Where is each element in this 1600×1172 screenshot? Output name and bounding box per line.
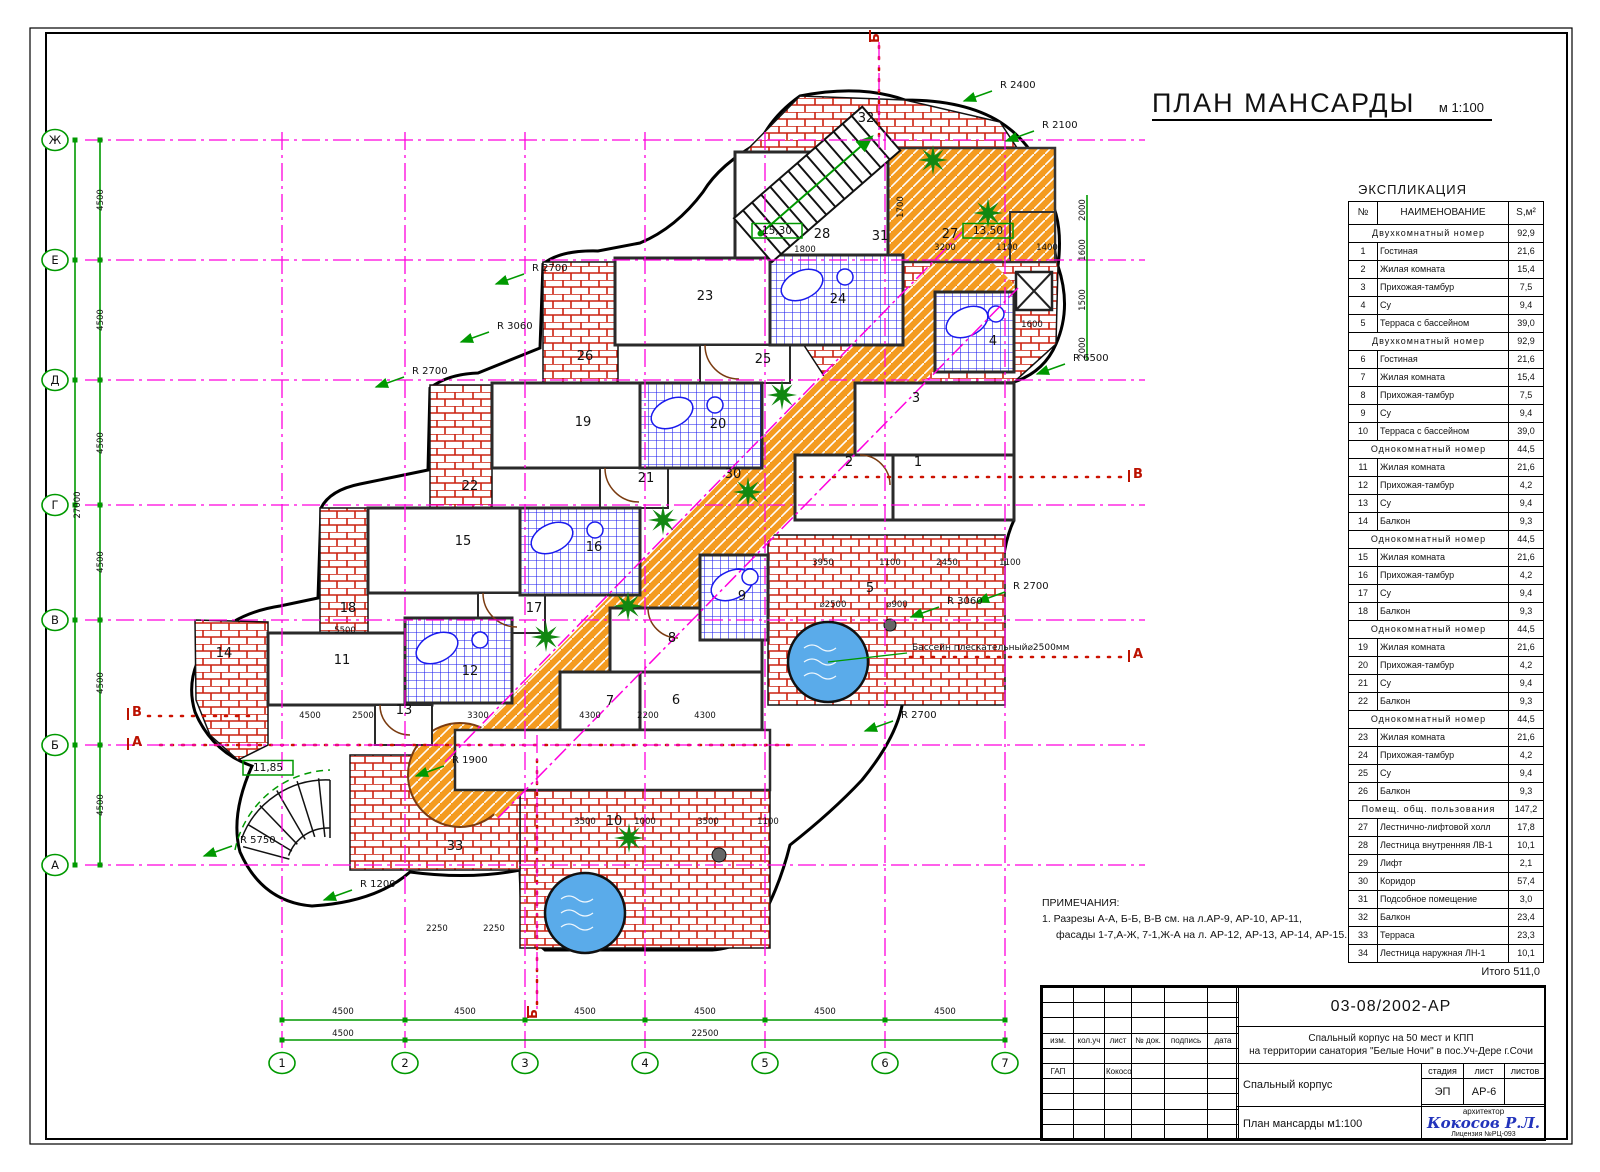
- room-number: 21: [638, 471, 655, 486]
- room-number: 27: [942, 227, 959, 242]
- dimension-label: 4300: [579, 711, 601, 721]
- explication-row: 9Су9,4: [1349, 405, 1544, 423]
- dimension-label: 2000: [1078, 199, 1088, 221]
- dimension-label: 3950: [812, 558, 834, 568]
- axis-letter: А: [51, 858, 59, 872]
- axis-number: 6: [881, 1056, 888, 1070]
- room-number: 8: [668, 631, 676, 646]
- tree-icon: [648, 505, 678, 535]
- section-mark: В: [132, 705, 142, 720]
- room-number: 2: [845, 455, 853, 470]
- explication-row: 28Лестница внутренняя ЛВ-110,1: [1349, 837, 1544, 855]
- dimension-label: 4500: [96, 672, 106, 694]
- explication-row: 32Балкон23,4: [1349, 909, 1544, 927]
- explication-row: 23Жилая комната21,6: [1349, 729, 1544, 747]
- explication-row: 18Балкон9,3: [1349, 603, 1544, 621]
- room-number: 14: [216, 646, 233, 661]
- explication-group-row: Однокомнатный номер44,5: [1349, 441, 1544, 459]
- radius-label: R 3060: [497, 321, 533, 332]
- radius-label: R 2700: [532, 263, 568, 274]
- room-number: 32: [858, 111, 875, 126]
- room-number: 22: [462, 479, 479, 494]
- axis-letter: Ж: [49, 133, 62, 147]
- dimension-label: 4300: [694, 711, 716, 721]
- axis-letter: Е: [51, 253, 58, 267]
- room-number: 30: [725, 467, 742, 482]
- room-number: 16: [586, 540, 603, 555]
- title-block: изм.кол.учлист№ док.подписьдатаГАПКокосо…: [1040, 985, 1546, 1141]
- dimension-label: 1100: [757, 817, 779, 827]
- dimension-label: 4500: [96, 794, 106, 816]
- explication-row: 21Су9,4: [1349, 675, 1544, 693]
- sheets-label: листов: [1504, 1063, 1546, 1079]
- explication-row: 10Терраса с бассейном39,0: [1349, 423, 1544, 441]
- axis-letter: В: [51, 613, 59, 627]
- license-number: Лицензия №РЦ-093: [1451, 1131, 1515, 1139]
- radius-leader: [964, 91, 992, 101]
- room-number: 11: [334, 653, 351, 668]
- explication-row: 25Су9,4: [1349, 765, 1544, 783]
- room-number: 3: [912, 391, 920, 406]
- dimension-label: 4500: [694, 1007, 716, 1017]
- explication-row: 3Прихожая-тамбур7,5: [1349, 279, 1544, 297]
- explication: ЭКСПЛИКАЦИЯ № НАИМЕНОВАНИЕ S,м²Двухкомна…: [1348, 182, 1544, 978]
- dimension-label: 2250: [426, 924, 448, 934]
- radius-leader: [376, 377, 404, 387]
- dimension-label: 4500: [96, 551, 106, 573]
- dimension-label: 4500: [934, 1007, 956, 1017]
- explication-row: 33Терраса23,3: [1349, 927, 1544, 945]
- dimension-label: 1600: [1078, 239, 1088, 261]
- notes: ПРИМЕЧАНИЯ: 1. Разрезы А-А, Б-Б, В-В см.…: [1042, 896, 1372, 943]
- room-number: 1: [914, 455, 922, 470]
- toilet-icon: [472, 632, 488, 648]
- room-number: 25: [755, 352, 772, 367]
- project-name: Спальный корпус на 50 мест и КПП на терр…: [1236, 1026, 1546, 1064]
- dimension-label: 4500: [96, 309, 106, 331]
- dimension-label: 4500: [814, 1007, 836, 1017]
- explication-row: 15Жилая комната21,6: [1349, 549, 1544, 567]
- tree-icon: [613, 591, 643, 621]
- dimension-label: 1700: [896, 196, 906, 218]
- explication-row: 22Балкон9,3: [1349, 693, 1544, 711]
- level-mark: 11,85: [253, 762, 283, 774]
- explication-row: 34Лестница наружная ЛН-110,1: [1349, 945, 1544, 963]
- dimension-label: 4500: [454, 1007, 476, 1017]
- stage-value: ЭП: [1421, 1078, 1464, 1105]
- room-number: 28: [814, 227, 831, 242]
- explication-row: 24Прихожая-тамбур4,2: [1349, 747, 1544, 765]
- explication-row: 12Прихожая-тамбур4,2: [1349, 477, 1544, 495]
- dimension-label: ⌀900: [886, 600, 907, 610]
- dimension-label: 4500: [96, 432, 106, 454]
- dimension-label: 1600: [1021, 320, 1043, 330]
- explication-title: ЭКСПЛИКАЦИЯ: [1358, 182, 1544, 197]
- tree-icon: [531, 622, 561, 652]
- dimension-label: 3500: [574, 817, 596, 827]
- section-mark: В: [1133, 467, 1143, 482]
- explication-row: 20Прихожая-тамбур4,2: [1349, 657, 1544, 675]
- explication-row: 26Балкон9,3: [1349, 783, 1544, 801]
- level-mark: 15,30: [762, 225, 792, 237]
- pool-label: Бассейн плескательный⌀2500мм: [912, 643, 1069, 653]
- section-mark: Б: [526, 1009, 541, 1019]
- room-number: 31: [872, 229, 889, 244]
- axis-letter: Д: [51, 373, 60, 387]
- room-number: 24: [830, 292, 847, 307]
- explication-row: 29Лифт2,1: [1349, 855, 1544, 873]
- dimension-label: 1800: [794, 245, 816, 255]
- room-number: 12: [462, 664, 479, 679]
- dimension-label: 2250: [483, 924, 505, 934]
- room-number: 17: [526, 601, 543, 616]
- dimension-label: 1100: [996, 243, 1018, 253]
- section-mark: А: [1133, 647, 1143, 662]
- explication-group-row: Двухкомнатный номер92,9: [1349, 333, 1544, 351]
- room-number: 20: [710, 417, 727, 432]
- page-title: ПЛАН МАНСАРДЫ: [1152, 88, 1415, 119]
- radius-label: R 5750: [240, 835, 276, 846]
- dimension-label: ⌀2500: [820, 600, 847, 610]
- dimension-label: 2500: [352, 711, 374, 721]
- tree-icon: [918, 145, 948, 175]
- dimension-label: 4500: [574, 1007, 596, 1017]
- explication-row: 4Су9,4: [1349, 297, 1544, 315]
- explication-row: 5Терраса с бассейном39,0: [1349, 315, 1544, 333]
- explication-row: 6Гостиная21,6: [1349, 351, 1544, 369]
- room-number: 4: [989, 334, 997, 349]
- revision-stamp: изм.кол.учлист№ док.подписьдатаГАПКокосо…: [1042, 987, 1239, 1140]
- axis-number: 7: [1001, 1056, 1008, 1070]
- room-number: 19: [575, 415, 592, 430]
- radius-label: R 2100: [1042, 120, 1078, 131]
- radius-label: R 2700: [1013, 581, 1049, 592]
- page-title-row: ПЛАН МАНСАРДЫ м 1:100: [1152, 88, 1492, 121]
- dimension-label: 3300: [467, 711, 489, 721]
- room-number: 13: [396, 703, 413, 718]
- sheets-value: [1504, 1078, 1546, 1105]
- explication-group-row: Однокомнатный номер44,5: [1349, 531, 1544, 549]
- explication-table: № НАИМЕНОВАНИЕ S,м²Двухкомнатный номер92…: [1348, 201, 1544, 963]
- level-mark: 13,50: [973, 225, 1003, 237]
- toilet-icon: [742, 569, 758, 585]
- radius-label: R 6500: [1073, 353, 1109, 364]
- explication-row: 16Прихожая-тамбур4,2: [1349, 567, 1544, 585]
- explication-total: Итого 511,0: [1348, 966, 1540, 978]
- explication-row: 2Жилая комната15,4: [1349, 261, 1544, 279]
- axis-number: 4: [641, 1056, 648, 1070]
- dimension-label: 1100: [879, 558, 901, 568]
- dimension-label: 22500: [691, 1029, 718, 1039]
- dimension-label: 3500: [697, 817, 719, 827]
- architect-signature: Кокосов Р.Л.: [1427, 1116, 1540, 1131]
- notes-line: 1. Разрезы А-А, Б-Б, В-В см. на л.АР-9, …: [1042, 912, 1372, 928]
- section-mark: А: [132, 735, 142, 750]
- axis-number: 5: [761, 1056, 768, 1070]
- dimension-label: 4500: [299, 711, 321, 721]
- dimension-label: 27000: [73, 491, 83, 518]
- explication-row: 17Су9,4: [1349, 585, 1544, 603]
- explication-row: 31Подсобное помещение3,0: [1349, 891, 1544, 909]
- explication-group-row: Помещ. общ. пользования147,2: [1349, 801, 1544, 819]
- dimension-label: 4500: [96, 189, 106, 211]
- room-number: 23: [697, 289, 714, 304]
- room-number: 26: [577, 349, 594, 364]
- explication-row: 8Прихожая-тамбур7,5: [1349, 387, 1544, 405]
- dimension-label: 1100: [999, 558, 1021, 568]
- column-dot: [712, 848, 726, 862]
- radius-label: R 2700: [412, 366, 448, 377]
- pool: [545, 873, 625, 953]
- explication-row: 7Жилая комната15,4: [1349, 369, 1544, 387]
- axis-number: 2: [401, 1056, 408, 1070]
- radius-label: R 2700: [901, 710, 937, 721]
- explication-row: 13Су9,4: [1349, 495, 1544, 513]
- explication-row: 14Балкон9,3: [1349, 513, 1544, 531]
- dimension-label: 2450: [936, 558, 958, 568]
- axis-letter: Г: [51, 498, 58, 512]
- dimension-label: 5500: [334, 626, 356, 636]
- dimension-label: 4500: [332, 1007, 354, 1017]
- dimension-label: 1500: [1078, 289, 1088, 311]
- tree-icon: [767, 380, 797, 410]
- explication-row: 27Лестнично-лифтовой холл17,8: [1349, 819, 1544, 837]
- explication-row: 19Жилая комната21,6: [1349, 639, 1544, 657]
- document-number: 03-08/2002-АР: [1236, 987, 1546, 1027]
- room-number: 7: [606, 694, 614, 709]
- radius-leader: [496, 274, 524, 284]
- room-number: 6: [672, 693, 680, 708]
- room-number: 5: [866, 581, 874, 596]
- toilet-icon: [837, 269, 853, 285]
- drawing-scale: м 1:100: [1439, 100, 1492, 117]
- sheet-label: лист: [1463, 1063, 1505, 1079]
- drawing-sheet: ЖЕДГВБА1234567 4500450045004500450045004…: [0, 0, 1600, 1172]
- dimension-label: 4500: [332, 1029, 354, 1039]
- radius-label: R 1200: [360, 879, 396, 890]
- dimension-label: 1000: [634, 817, 656, 827]
- toilet-icon: [707, 397, 723, 413]
- column-dot: [884, 619, 896, 631]
- explication-row: 30Коридор57,4: [1349, 873, 1544, 891]
- toilet-icon: [587, 522, 603, 538]
- drawing-title: План мансарды м1:100: [1236, 1106, 1422, 1141]
- axis-letter: Б: [51, 738, 59, 752]
- axis-number: 1: [278, 1056, 285, 1070]
- architect-block: архитектор Кокосов Р.Л. Лицензия №РЦ-093: [1421, 1106, 1546, 1141]
- notes-title: ПРИМЕЧАНИЯ:: [1042, 896, 1372, 912]
- section-mark: Б: [868, 33, 883, 43]
- room-number: 33: [447, 839, 464, 854]
- explication-row: 11Жилая комната21,6: [1349, 459, 1544, 477]
- object-name: Спальный корпус: [1236, 1063, 1422, 1107]
- room-number: 18: [340, 601, 357, 616]
- lift-shaft: [1016, 272, 1052, 310]
- room-number: 9: [738, 589, 746, 604]
- explication-group-row: Однокомнатный номер44,5: [1349, 621, 1544, 639]
- radius-label: R 2400: [1000, 80, 1036, 91]
- axis-number: 3: [521, 1056, 528, 1070]
- radius-leader: [204, 846, 232, 856]
- room-number: 15: [455, 534, 472, 549]
- dimension-label: 3200: [934, 243, 956, 253]
- radius-label: R 3060: [947, 596, 983, 607]
- stage-label: стадия: [1421, 1063, 1464, 1079]
- notes-line: фасады 1-7,А-Ж, 7-1,Ж-А на л. АР-12, АР-…: [1056, 928, 1372, 944]
- radius-leader: [461, 332, 489, 342]
- explication-group-row: Двухкомнатный номер92,9: [1349, 225, 1544, 243]
- sheet-value: АР-6: [1463, 1078, 1505, 1105]
- explication-row: 1Гостиная21,6: [1349, 243, 1544, 261]
- explication-group-row: Однокомнатный номер44,5: [1349, 711, 1544, 729]
- room-number: 10: [606, 814, 623, 829]
- toilet-icon: [988, 306, 1004, 322]
- dimension-label: 2200: [637, 711, 659, 721]
- dimension-label: 1400: [1036, 243, 1058, 253]
- radius-label: R 1900: [452, 755, 488, 766]
